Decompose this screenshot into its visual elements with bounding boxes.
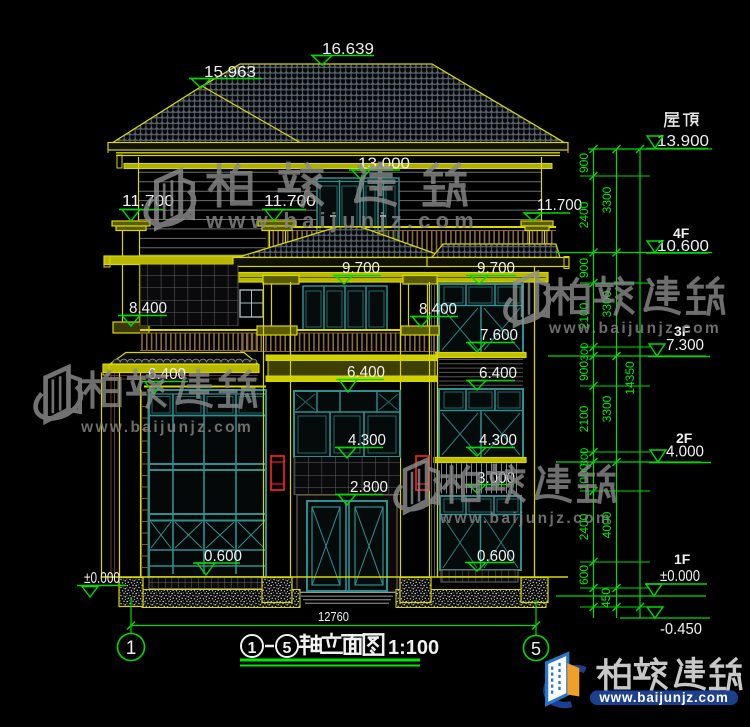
svg-text:www.baijunjz.com: www.baijunjz.com — [548, 320, 721, 337]
svg-text:450: 450 — [599, 588, 613, 608]
svg-text:6.400: 6.400 — [347, 364, 385, 381]
svg-text:900: 900 — [577, 258, 591, 278]
svg-text:9.700: 9.700 — [477, 260, 515, 277]
svg-text:300: 300 — [579, 343, 591, 361]
svg-text:www.baijunjz.com: www.baijunjz.com — [598, 690, 728, 705]
svg-text:2100: 2100 — [577, 405, 591, 432]
svg-text:7.600: 7.600 — [480, 327, 518, 344]
svg-text:6.400: 6.400 — [479, 365, 517, 382]
svg-text:2.800: 2.800 — [350, 479, 388, 496]
svg-text:600: 600 — [577, 565, 591, 585]
svg-text:1F: 1F — [674, 551, 691, 567]
svg-text:300: 300 — [579, 448, 591, 466]
svg-text:9.700: 9.700 — [342, 260, 380, 277]
svg-text:1: 1 — [126, 638, 137, 659]
svg-text:8.400: 8.400 — [129, 300, 167, 317]
svg-text:8.400: 8.400 — [419, 301, 457, 318]
svg-text:1: 1 — [248, 640, 257, 657]
svg-text:www.baijunjz.com: www.baijunjz.com — [439, 510, 612, 527]
svg-text:±0.000: ±0.000 — [84, 570, 120, 587]
svg-text:14350: 14350 — [623, 361, 637, 395]
svg-text:7.300: 7.300 — [666, 337, 704, 354]
svg-text:1:100: 1:100 — [388, 637, 439, 659]
svg-text:5: 5 — [531, 639, 541, 659]
svg-text:900: 900 — [577, 361, 591, 381]
svg-text:13.900: 13.900 — [657, 133, 709, 150]
svg-text:12760: 12760 — [318, 609, 349, 624]
svg-text:www.baijunjz.com: www.baijunjz.com — [205, 208, 479, 233]
svg-text:5: 5 — [283, 640, 292, 657]
svg-text:2400: 2400 — [577, 201, 591, 228]
svg-text:900: 900 — [577, 153, 591, 173]
svg-text:4.300: 4.300 — [348, 432, 386, 449]
svg-text:3300: 3300 — [600, 186, 614, 213]
svg-text:3300: 3300 — [600, 395, 614, 422]
svg-text:±0.000: ±0.000 — [660, 568, 700, 585]
svg-text:www.baijunjz.com: www.baijunjz.com — [80, 419, 253, 436]
svg-text:4.000: 4.000 — [666, 444, 704, 461]
svg-text:4.300: 4.300 — [479, 432, 517, 449]
svg-text:-0.450: -0.450 — [660, 621, 702, 638]
svg-text:11.700: 11.700 — [537, 197, 582, 214]
